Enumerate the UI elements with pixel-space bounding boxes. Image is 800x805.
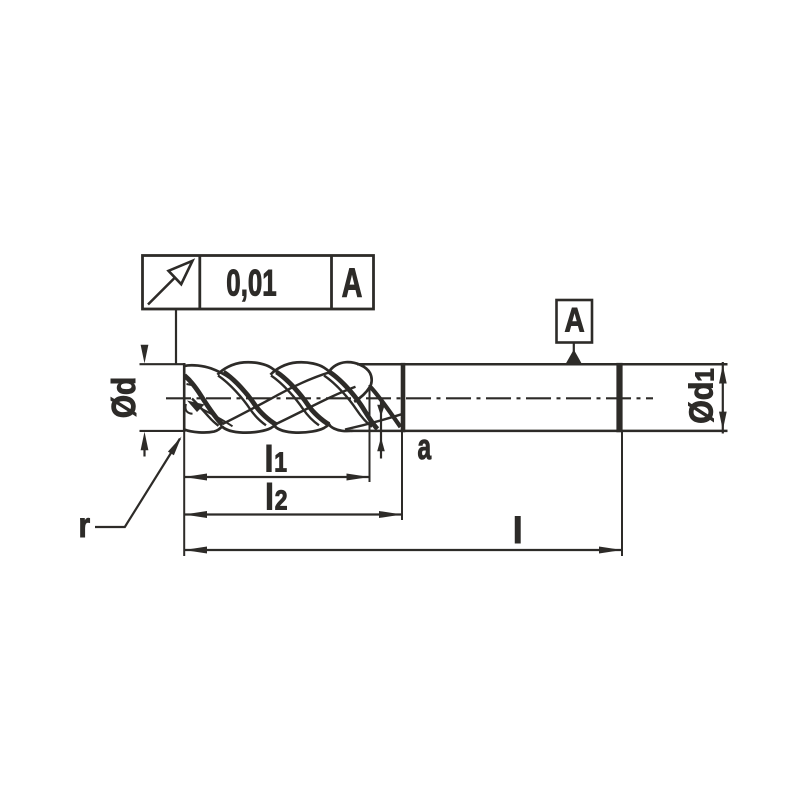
svg-text:A: A <box>564 301 584 339</box>
svg-text:r: r <box>79 506 91 545</box>
svg-text:0,01: 0,01 <box>226 262 276 304</box>
svg-text:a: a <box>418 426 432 467</box>
svg-text:l: l <box>513 510 523 551</box>
svg-text:A: A <box>342 261 363 306</box>
svg-text:l: l <box>265 440 274 480</box>
svg-text:l: l <box>265 478 274 518</box>
svg-text:Ød: Ød <box>106 377 143 418</box>
svg-text:1: 1 <box>274 447 287 478</box>
svg-text:2: 2 <box>275 485 288 516</box>
